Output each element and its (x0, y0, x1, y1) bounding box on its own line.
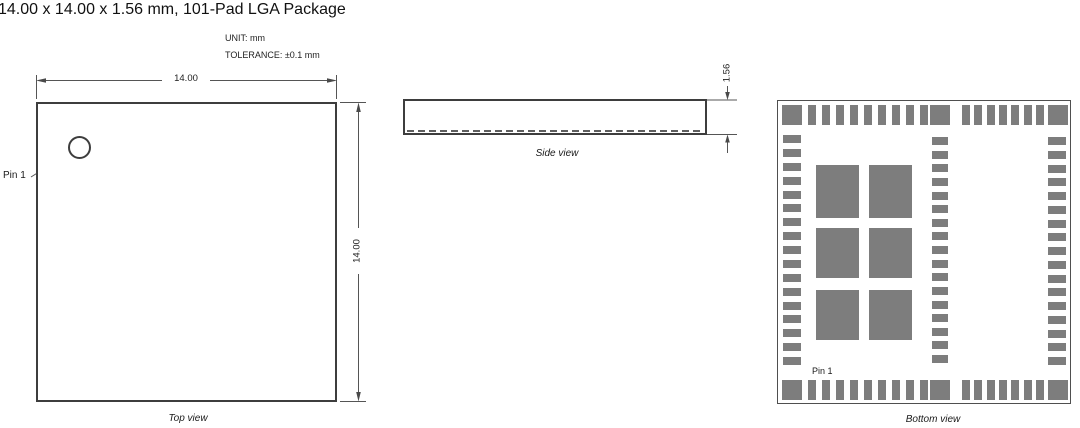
lga-pad (974, 380, 982, 400)
lga-pad (932, 192, 948, 200)
lga-pad (906, 105, 914, 125)
lga-package-drawing: 14.00 x 14.00 x 1.56 mm, 101-Pad LGA Pac… (0, 0, 1080, 428)
lga-pad (869, 228, 912, 278)
lga-pad (932, 273, 948, 281)
lga-pad (878, 105, 886, 125)
lga-pad (1048, 302, 1066, 310)
lga-pad (1048, 105, 1068, 125)
lga-pad (930, 380, 950, 400)
lga-pad (1048, 220, 1066, 228)
lga-pad (1036, 380, 1044, 400)
lga-pad (1048, 330, 1066, 338)
lga-pad (1048, 357, 1066, 365)
lga-pad (932, 205, 948, 213)
lga-pad (783, 343, 801, 351)
lga-pad (1048, 137, 1066, 145)
side-view-label: Side view (517, 148, 597, 159)
lga-pad (850, 105, 858, 125)
lga-pad (932, 341, 948, 349)
lga-pad (783, 329, 801, 337)
lga-pad (932, 232, 948, 240)
lga-pad (999, 380, 1007, 400)
bottom-view-label: Bottom view (883, 414, 983, 425)
lga-pad (1036, 105, 1044, 125)
lga-pad (930, 105, 950, 125)
lga-pad (999, 105, 1007, 125)
lga-pad (816, 290, 859, 340)
lga-pad (1048, 151, 1066, 159)
lga-pad (783, 357, 801, 365)
top-view-pin1-label: Pin 1 (3, 170, 26, 181)
lga-pad (920, 105, 928, 125)
lga-pad (864, 105, 872, 125)
lga-pad (782, 105, 802, 125)
top-view-height-dimension: 14.00 (352, 239, 363, 263)
bottom-view-pin1-label: Pin 1 (812, 366, 833, 376)
lga-pad (822, 380, 830, 400)
lga-pad (906, 380, 914, 400)
lga-pad (783, 177, 801, 185)
lga-pad (822, 105, 830, 125)
lga-pad (1048, 206, 1066, 214)
lga-pad (783, 232, 801, 240)
lga-pad (878, 380, 886, 400)
lga-pad (1048, 165, 1066, 173)
lga-pad (920, 380, 928, 400)
page-title: 14.00 x 14.00 x 1.56 mm, 101-Pad LGA Pac… (0, 1, 346, 19)
lga-pad (1048, 192, 1066, 200)
lga-pad (932, 260, 948, 268)
lga-pad (962, 105, 970, 125)
bottom-view-pad-layout (777, 100, 1071, 404)
lga-pad (1048, 380, 1068, 400)
lga-pad (932, 137, 948, 145)
side-view-outline (403, 99, 707, 135)
lga-pad (864, 380, 872, 400)
lga-pad (932, 355, 948, 363)
lga-pad (1048, 247, 1066, 255)
lga-pad (783, 315, 801, 323)
lga-pad (783, 218, 801, 226)
pin1-marker-circle (68, 136, 91, 159)
lga-pad (1048, 261, 1066, 269)
lga-pad (783, 288, 801, 296)
lga-pad (932, 314, 948, 322)
tolerance-note: TOLERANCE: ±0.1 mm (225, 50, 320, 60)
lga-pad (783, 274, 801, 282)
lga-pad (932, 178, 948, 186)
lga-pad (932, 151, 948, 159)
lga-pad (892, 380, 900, 400)
side-view-thickness-dimension: 1.56 (722, 64, 733, 83)
lga-pad (783, 260, 801, 268)
lga-pad (783, 191, 801, 199)
top-view-width-dimension: 14.00 (164, 73, 208, 84)
lga-pad (932, 301, 948, 309)
lga-pad (783, 163, 801, 171)
side-view-pad-dashes (407, 130, 703, 133)
lga-pad (1024, 380, 1032, 400)
lga-pad (783, 135, 801, 143)
lga-pad (783, 246, 801, 254)
lga-pad (869, 165, 912, 218)
top-view-label: Top view (148, 413, 228, 424)
lga-pad (816, 165, 859, 218)
lga-pad (850, 380, 858, 400)
lga-pad (783, 302, 801, 310)
lga-pad (1048, 233, 1066, 241)
lga-pad (932, 219, 948, 227)
lga-pad (808, 105, 816, 125)
lga-pad (836, 380, 844, 400)
lga-pad (932, 328, 948, 336)
lga-pad (869, 290, 912, 340)
lga-pad (1048, 275, 1066, 283)
lga-pad (932, 246, 948, 254)
lga-pad (1048, 178, 1066, 186)
lga-pad (892, 105, 900, 125)
lga-pad (783, 204, 801, 212)
lga-pad (808, 380, 816, 400)
unit-note: UNIT: mm (225, 33, 265, 43)
lga-pad (974, 105, 982, 125)
lga-pad (962, 380, 970, 400)
lga-pad (1011, 380, 1019, 400)
lga-pad (932, 287, 948, 295)
lga-pad (782, 380, 802, 400)
lga-pad (987, 380, 995, 400)
lga-pad (1048, 288, 1066, 296)
lga-pad (987, 105, 995, 125)
lga-pad (1048, 343, 1066, 351)
lga-pad (1011, 105, 1019, 125)
lga-pad (816, 228, 859, 278)
lga-pad (1048, 316, 1066, 324)
lga-pad (783, 149, 801, 157)
lga-pad (932, 164, 948, 172)
lga-pad (1024, 105, 1032, 125)
lga-pad (836, 105, 844, 125)
